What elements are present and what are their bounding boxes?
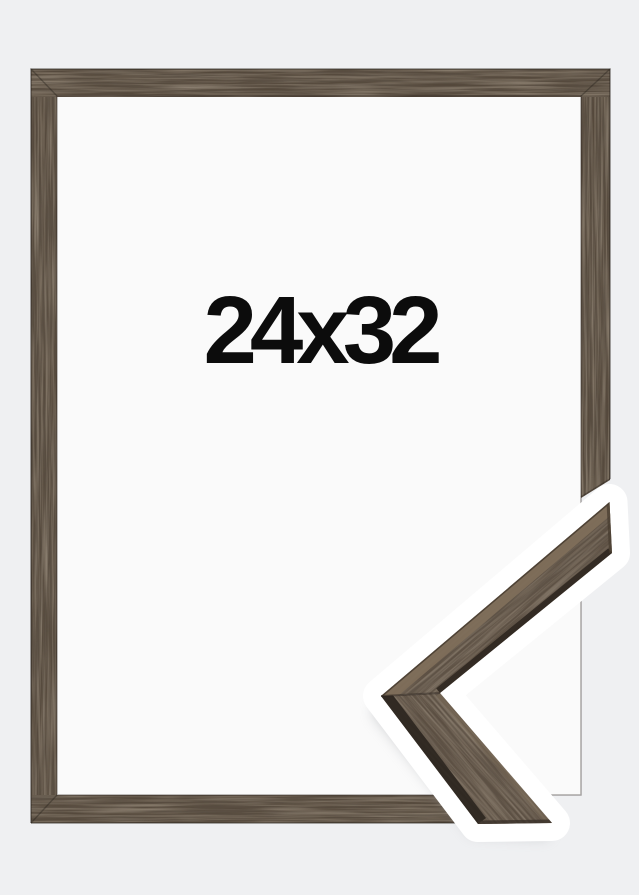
frame-render bbox=[0, 0, 639, 895]
frame-opening bbox=[57, 96, 581, 795]
size-label: 24x32 bbox=[0, 283, 639, 379]
product-image: 24x32 bbox=[0, 0, 639, 895]
